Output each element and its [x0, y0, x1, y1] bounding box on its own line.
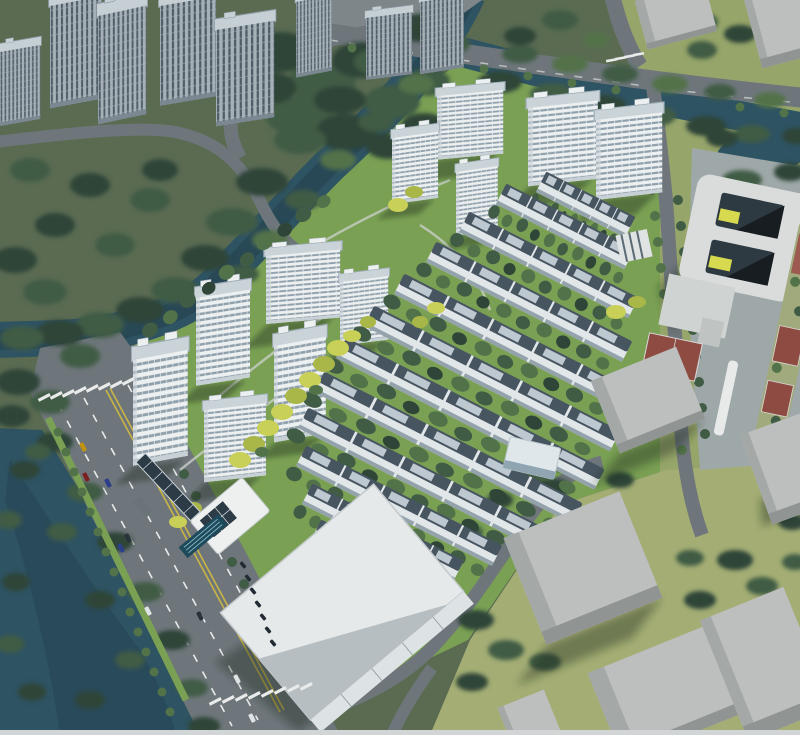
- aerial-rendering-stage: Aerial rendering of riverside residentia…: [0, 0, 800, 735]
- bottom-edge-strip: [0, 730, 800, 735]
- aerial-rendering: Aerial rendering of riverside residentia…: [0, 0, 800, 735]
